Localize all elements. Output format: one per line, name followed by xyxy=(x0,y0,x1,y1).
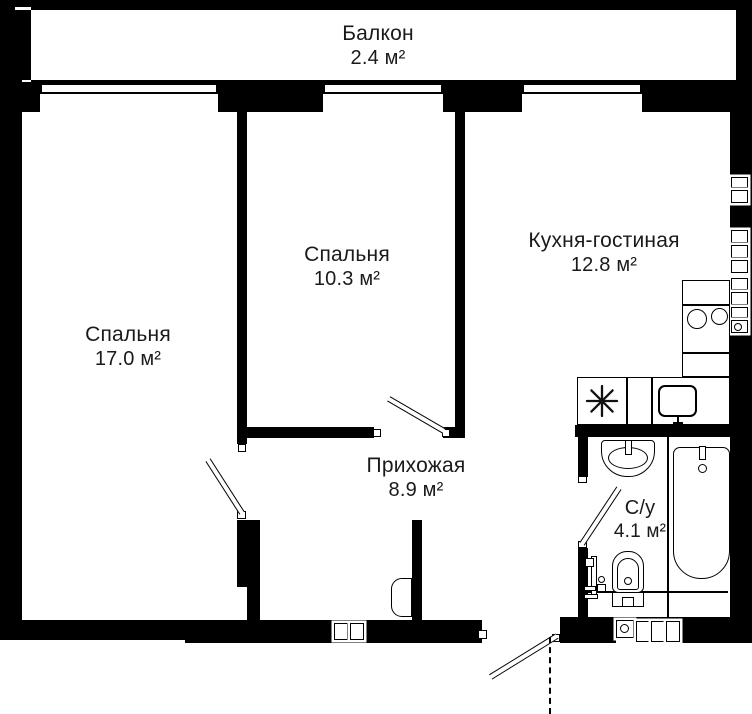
vent-box-icon xyxy=(334,623,348,640)
room-area: 12.8 м² xyxy=(504,253,704,278)
vent-box-strip xyxy=(616,640,634,643)
room-name: Спальня xyxy=(247,242,447,267)
vent-box-icon xyxy=(636,621,650,642)
room-name: Балкон xyxy=(278,21,478,46)
counter-divider-line xyxy=(651,378,653,424)
vent-box-icon xyxy=(731,292,748,305)
room-area: 10.3 м² xyxy=(247,267,447,292)
toilet-flush-icon xyxy=(624,577,632,585)
jamb-bathroom-top xyxy=(578,476,587,483)
toilet-bowl-inner-icon xyxy=(617,558,639,590)
wall-bedrooms-divider xyxy=(237,112,247,444)
vent-box-icon xyxy=(350,623,364,640)
vent-box-icon xyxy=(731,245,748,258)
room-name: Прихожая xyxy=(316,453,516,478)
vent-box-icon xyxy=(731,190,748,203)
wall-balcony-left xyxy=(0,10,31,80)
wall-balcony-right xyxy=(736,10,752,82)
vent-circle-icon xyxy=(734,323,742,331)
bathtub-drain-icon xyxy=(698,464,707,473)
stove-unit xyxy=(682,280,730,377)
jamb-entrance-left xyxy=(478,630,487,639)
pipe-valve-icon xyxy=(584,594,598,599)
wall-left xyxy=(0,80,22,620)
bathtub-tap-icon xyxy=(699,446,706,460)
sink-star-icon xyxy=(584,383,620,419)
entrance-door-swing-dash xyxy=(549,637,551,714)
wall-bedroom1-stub-thin xyxy=(247,587,260,620)
door-leaf-bedroom1-icon xyxy=(205,458,244,514)
vent-box-icon xyxy=(731,260,748,273)
room-name: Спальня xyxy=(28,322,228,347)
floor-plan: Балкон 2.4 м² Спальня 17.0 м² Спальня 10… xyxy=(0,0,752,714)
room-label-kitchen-living: Кухня-гостиная 12.8 м² xyxy=(504,228,704,278)
jamb-bedroom1-top xyxy=(238,444,246,452)
wall-hallway-right xyxy=(412,520,422,620)
kitchen-sink-icon xyxy=(658,385,697,417)
wall-top xyxy=(0,0,752,10)
pipe-valve-icon xyxy=(585,558,594,567)
burner-icon xyxy=(687,309,707,329)
wall-pier-b xyxy=(218,82,323,112)
window-bedroom-2-icon xyxy=(323,83,443,94)
vent-box-icon xyxy=(731,177,748,188)
room-name: С/у xyxy=(590,497,690,520)
room-area: 4.1 м² xyxy=(590,520,690,543)
window-bedroom-1-icon xyxy=(40,83,218,94)
pipe-valve-icon xyxy=(584,586,596,591)
bathroom-floor-line xyxy=(588,591,728,593)
kitchen-sink-tap-icon xyxy=(673,422,683,424)
wall-bathroom-left-upper xyxy=(578,437,588,477)
vent-box-icon xyxy=(651,621,665,642)
vent-box-icon xyxy=(666,621,680,642)
burner-icon xyxy=(711,308,728,325)
vent-box-icon xyxy=(731,307,748,318)
room-label-bedroom-1: Спальня 17.0 м² xyxy=(28,322,228,372)
wall-kitchen-left xyxy=(455,112,465,435)
wall-bedroom2-bottom xyxy=(237,427,374,438)
wall-bottom-left xyxy=(0,620,185,640)
room-area: 17.0 м² xyxy=(28,347,228,372)
pipe-valve-icon xyxy=(598,576,605,583)
balcony-corner-notch xyxy=(15,7,31,10)
jamb-bedroom2-left xyxy=(373,429,381,437)
wall-pier-c xyxy=(443,82,522,112)
toilet-tank-valve-icon xyxy=(622,597,634,607)
wall-bathroom-top xyxy=(575,425,730,437)
room-label-hallway: Прихожая 8.9 м² xyxy=(316,453,516,503)
door-leaf-bedroom2-icon xyxy=(387,396,445,433)
vent-box-icon xyxy=(731,278,748,290)
stove-unit-line xyxy=(682,352,730,354)
wall-bedroom1-stub-thick xyxy=(237,520,260,587)
counter-divider-line xyxy=(626,378,628,424)
room-area: 8.9 м² xyxy=(316,478,516,503)
room-name: Кухня-гостиная xyxy=(504,228,704,253)
stove-unit-line xyxy=(682,304,730,306)
sink-tap-icon xyxy=(625,440,632,455)
closet-door-icon xyxy=(391,578,412,617)
room-label-bathroom: С/у 4.1 м² xyxy=(590,497,690,543)
room-area: 2.4 м² xyxy=(278,46,478,71)
room-label-balcony: Балкон 2.4 м² xyxy=(278,21,478,71)
vent-box-icon xyxy=(731,230,748,243)
window-kitchen-icon xyxy=(522,83,642,94)
room-label-bedroom-2: Спальня 10.3 м² xyxy=(247,242,447,292)
vent-circle-icon xyxy=(620,624,629,633)
pipe-valve-icon xyxy=(597,584,606,592)
wall-pier-d xyxy=(642,82,752,112)
